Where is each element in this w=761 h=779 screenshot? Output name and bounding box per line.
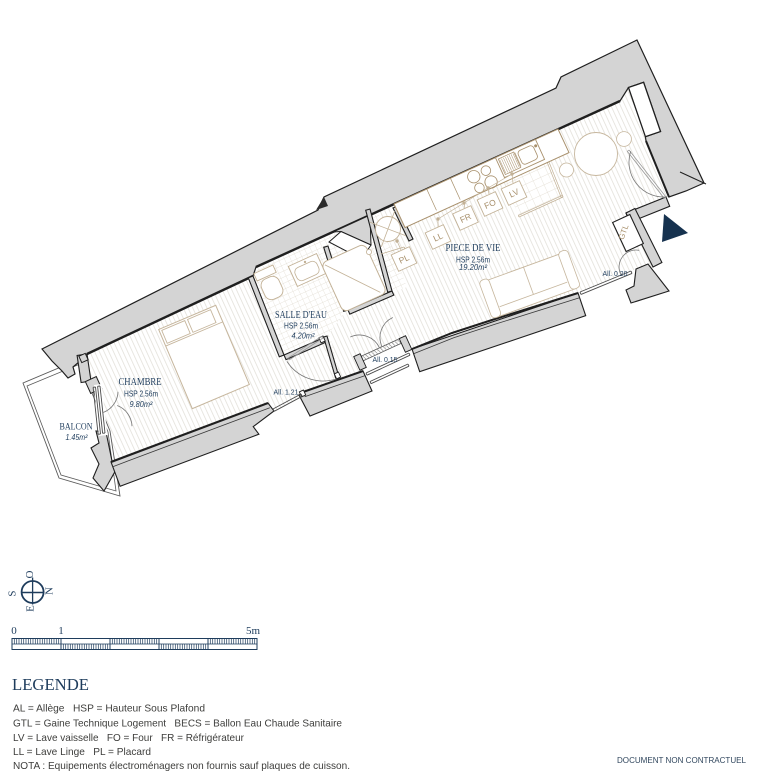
svg-text:PIECE DE VIE: PIECE DE VIE bbox=[446, 243, 501, 254]
svg-text:1: 1 bbox=[58, 625, 64, 637]
svg-text:E: E bbox=[25, 605, 37, 612]
svg-text:HSP 2.56m: HSP 2.56m bbox=[284, 322, 318, 331]
svg-text:LL = Lave Linge PL = Placard: LL = Lave Linge PL = Placard bbox=[13, 746, 151, 758]
svg-text:All. 0.15: All. 0.15 bbox=[373, 355, 398, 364]
svg-text:All. 0.20: All. 0.20 bbox=[603, 269, 628, 278]
svg-text:AL = Allège HSP = Hauteur So: AL = Allège HSP = Hauteur Sous Plafond bbox=[13, 703, 205, 715]
svg-text:LV = Lave vaisselle FO = Fou: LV = Lave vaisselle FO = Four FR = Réfri… bbox=[13, 732, 244, 744]
svg-text:HSP 2.56m: HSP 2.56m bbox=[124, 390, 158, 399]
svg-text:SALLE D'EAU: SALLE D'EAU bbox=[275, 310, 328, 321]
svg-text:NOTA : Equipements électroména: NOTA : Equipements électroménagers non f… bbox=[13, 760, 350, 772]
svg-text:DOCUMENT NON CONTRACTUEL: DOCUMENT NON CONTRACTUEL bbox=[617, 755, 746, 765]
svg-text:4.20m²: 4.20m² bbox=[292, 332, 315, 341]
svg-text:N: N bbox=[44, 587, 56, 595]
svg-text:BALCON: BALCON bbox=[60, 423, 93, 433]
svg-text:5m: 5m bbox=[246, 625, 261, 637]
svg-text:0: 0 bbox=[11, 625, 17, 637]
svg-text:S: S bbox=[7, 590, 19, 596]
svg-text:1.45m²: 1.45m² bbox=[66, 433, 88, 442]
svg-text:19.20m²: 19.20m² bbox=[459, 263, 487, 272]
svg-text:O: O bbox=[24, 570, 36, 578]
svg-text:GTL = Gaine Technique Logement: GTL = Gaine Technique Logement BECS = Ba… bbox=[13, 718, 342, 730]
svg-text:CHAMBRE: CHAMBRE bbox=[119, 377, 162, 388]
svg-text:9.80m²: 9.80m² bbox=[130, 400, 153, 409]
svg-text:LEGENDE: LEGENDE bbox=[12, 675, 89, 694]
svg-text:All. 1.21: All. 1.21 bbox=[274, 388, 299, 397]
